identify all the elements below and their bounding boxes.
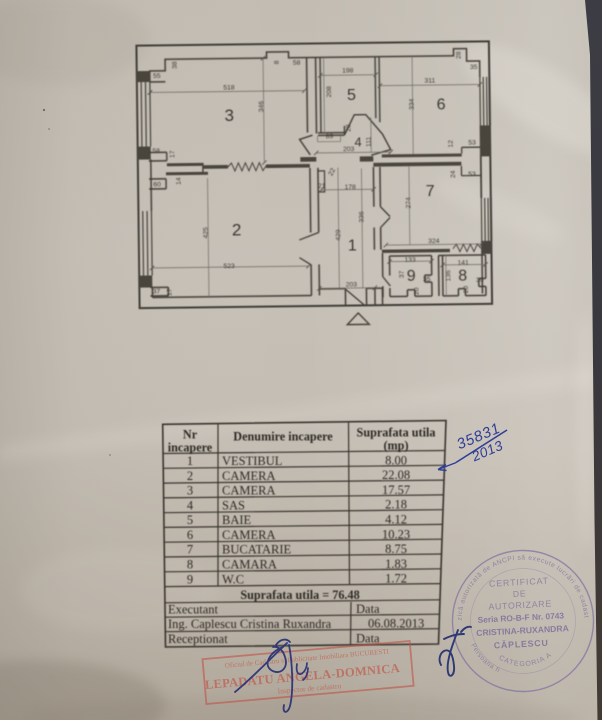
svg-text:BUCATARIE: BUCATARIE bbox=[222, 543, 292, 557]
svg-text:178: 178 bbox=[344, 184, 356, 191]
svg-text:429: 429 bbox=[335, 229, 342, 241]
svg-text:6: 6 bbox=[187, 528, 193, 542]
svg-text:(mp): (mp) bbox=[383, 439, 408, 453]
svg-text:10.23: 10.23 bbox=[382, 527, 410, 541]
svg-text:3: 3 bbox=[187, 484, 193, 498]
svg-text:55: 55 bbox=[153, 73, 161, 80]
svg-text:4: 4 bbox=[187, 498, 194, 512]
svg-text:518: 518 bbox=[223, 84, 235, 91]
svg-text:17.57: 17.57 bbox=[382, 483, 410, 497]
svg-text:20: 20 bbox=[463, 286, 470, 294]
svg-text:8.75: 8.75 bbox=[385, 542, 407, 556]
svg-text:CAMERA: CAMERA bbox=[222, 528, 275, 542]
svg-text:1.72: 1.72 bbox=[385, 572, 407, 586]
svg-text:111: 111 bbox=[366, 136, 373, 147]
svg-text:136: 136 bbox=[445, 270, 452, 282]
svg-text:203: 203 bbox=[346, 281, 358, 288]
svg-text:58: 58 bbox=[152, 148, 160, 155]
svg-text:Suprafata utila: Suprafata utila bbox=[357, 426, 436, 440]
svg-text:5: 5 bbox=[187, 513, 193, 527]
svg-text:CAMERA: CAMERA bbox=[222, 484, 275, 498]
svg-text:346: 346 bbox=[258, 101, 265, 113]
svg-text:2.18: 2.18 bbox=[385, 498, 407, 512]
svg-text:Suprafata utila = 76.48: Suprafata utila = 76.48 bbox=[240, 588, 359, 602]
svg-text:Nr: Nr bbox=[183, 428, 198, 442]
svg-text:523: 523 bbox=[223, 263, 235, 270]
svg-text:336: 336 bbox=[358, 211, 365, 223]
svg-text:311: 311 bbox=[424, 77, 435, 84]
svg-text:334: 334 bbox=[409, 98, 416, 110]
svg-text:17: 17 bbox=[166, 288, 173, 296]
svg-text:VESTIBUL: VESTIBUL bbox=[222, 454, 282, 468]
svg-text:Executant: Executant bbox=[168, 603, 219, 617]
svg-text:89: 89 bbox=[326, 133, 334, 140]
svg-text:5: 5 bbox=[347, 87, 356, 104]
svg-text:incapere: incapere bbox=[168, 441, 213, 455]
svg-text:8: 8 bbox=[187, 558, 193, 572]
svg-text:6: 6 bbox=[437, 96, 446, 113]
svg-text:324: 324 bbox=[428, 238, 440, 245]
svg-text:53: 53 bbox=[468, 171, 476, 178]
svg-text:7: 7 bbox=[426, 183, 435, 200]
svg-text:8.00: 8.00 bbox=[385, 453, 407, 467]
svg-text:1: 1 bbox=[348, 237, 357, 254]
svg-text:37: 37 bbox=[399, 270, 406, 278]
svg-text:58: 58 bbox=[293, 60, 301, 67]
svg-text:14: 14 bbox=[176, 177, 183, 185]
svg-text:4.12: 4.12 bbox=[385, 513, 407, 527]
svg-text:7: 7 bbox=[187, 543, 193, 557]
svg-text:60: 60 bbox=[153, 181, 161, 188]
svg-text:Denumire incapere: Denumire incapere bbox=[233, 430, 333, 444]
svg-text:203: 203 bbox=[343, 146, 355, 153]
svg-text:12: 12 bbox=[448, 140, 455, 148]
svg-text:28: 28 bbox=[345, 124, 352, 132]
svg-text:24: 24 bbox=[450, 170, 457, 178]
svg-text:1.83: 1.83 bbox=[385, 557, 407, 571]
svg-text:06.08.2013: 06.08.2013 bbox=[368, 617, 424, 631]
svg-text:W.C: W.C bbox=[222, 572, 244, 586]
svg-text:37: 37 bbox=[153, 288, 161, 295]
svg-text:208: 208 bbox=[326, 86, 333, 98]
svg-text:2: 2 bbox=[187, 469, 193, 483]
svg-text:53: 53 bbox=[468, 140, 476, 147]
svg-text:21: 21 bbox=[318, 183, 326, 190]
svg-text:17: 17 bbox=[169, 150, 176, 158]
svg-text:9: 9 bbox=[187, 572, 193, 586]
svg-text:425: 425 bbox=[203, 227, 210, 239]
svg-text:Data: Data bbox=[356, 602, 380, 616]
svg-text:8: 8 bbox=[274, 60, 281, 64]
svg-text:8: 8 bbox=[458, 268, 467, 285]
svg-text:35: 35 bbox=[423, 276, 431, 283]
svg-text:1: 1 bbox=[187, 454, 193, 468]
svg-text:30: 30 bbox=[476, 277, 484, 284]
svg-text:133: 133 bbox=[404, 257, 416, 264]
svg-text:Ing. Caplescu Cristina Ruxandr: Ing. Caplescu Cristina Ruxandra bbox=[168, 617, 332, 631]
svg-text:141: 141 bbox=[457, 260, 469, 267]
svg-text:CAMARA: CAMARA bbox=[222, 558, 277, 572]
svg-text:3: 3 bbox=[224, 106, 234, 125]
svg-text:35: 35 bbox=[470, 64, 478, 71]
svg-text:274: 274 bbox=[405, 197, 412, 209]
svg-text:4: 4 bbox=[354, 134, 361, 149]
svg-text:28: 28 bbox=[455, 51, 462, 59]
svg-text:DE: DE bbox=[513, 588, 527, 599]
svg-text:38: 38 bbox=[172, 61, 179, 69]
svg-text:22.08: 22.08 bbox=[382, 468, 410, 482]
svg-text:BAIE: BAIE bbox=[222, 513, 252, 527]
svg-text:2: 2 bbox=[232, 220, 242, 239]
svg-text:SAS: SAS bbox=[222, 498, 245, 512]
svg-text:198: 198 bbox=[342, 67, 354, 74]
svg-text:20: 20 bbox=[413, 287, 420, 295]
svg-text:9: 9 bbox=[407, 268, 416, 285]
svg-text:CAMERA: CAMERA bbox=[222, 469, 275, 483]
svg-text:Receptionat: Receptionat bbox=[168, 632, 228, 646]
